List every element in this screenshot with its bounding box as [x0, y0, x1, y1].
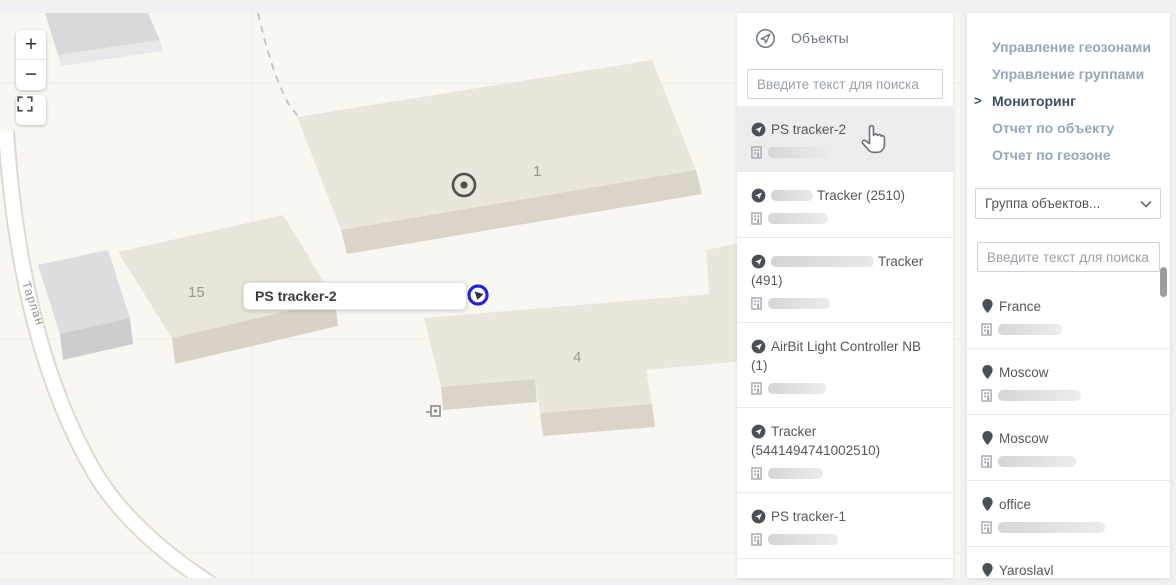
scrollbar-thumb[interactable]	[1160, 267, 1167, 297]
geofence-name: France	[999, 299, 1041, 314]
object-item-tracker-491[interactable]: Tracker (491)	[737, 238, 953, 323]
object-group-select-value: Группа объектов...	[985, 196, 1100, 211]
nav-link-groups[interactable]: Управление группами	[967, 65, 1170, 83]
object-name: Tracker (5441494741002510)	[751, 424, 880, 458]
redacted-text	[768, 534, 838, 545]
redacted-text	[998, 324, 1062, 335]
map-tooltip: PS tracker-2	[243, 282, 467, 310]
map-tooltip-label: PS tracker-2	[255, 288, 337, 304]
geofence-item-yaroslavl[interactable]: Yaroslavl	[967, 547, 1170, 578]
object-name: AirBit Light Controller NB (1)	[751, 339, 921, 373]
redacted-text	[768, 213, 828, 224]
building-icon	[751, 382, 762, 395]
send-icon	[751, 424, 766, 439]
object-identifier-redacted	[751, 467, 939, 480]
objects-search-input[interactable]	[747, 69, 943, 99]
geofence-list: France Moscow	[967, 283, 1170, 578]
zoom-control: + −	[16, 30, 46, 90]
object-identifier-redacted	[751, 382, 939, 395]
object-identifier-redacted	[751, 146, 939, 159]
object-item-ps-tracker-1[interactable]: PS tracker-1	[737, 493, 953, 559]
map-pin-icon	[981, 364, 994, 380]
dashed-boundary-line	[258, 13, 303, 123]
send-icon	[751, 254, 766, 269]
geofence-item-office[interactable]: office	[967, 481, 1170, 547]
fullscreen-button[interactable]	[16, 95, 46, 125]
entrance-icon	[426, 406, 440, 416]
send-icon	[751, 188, 766, 203]
geofence-address-redacted	[981, 389, 1156, 402]
building-icon	[981, 455, 992, 468]
map-pin-icon	[981, 298, 994, 314]
geofence-item-moscow-2[interactable]: Moscow	[967, 415, 1170, 481]
geofence-item-moscow-1[interactable]: Moscow	[967, 349, 1170, 415]
page: { "colors": { "marker_blue": "#2626d9", …	[0, 0, 1176, 585]
building-icon	[981, 521, 992, 534]
zoom-in-button[interactable]: +	[16, 30, 46, 60]
redacted-text	[768, 147, 830, 158]
building-gray-topleft	[45, 13, 163, 66]
building-4: 4	[424, 292, 756, 436]
object-name: Tracker (2510)	[817, 188, 905, 203]
redacted-text	[768, 383, 826, 394]
nav-link-geozone-report[interactable]: Отчет по геозоне	[967, 146, 1170, 164]
geofence-address-redacted	[981, 455, 1156, 468]
map-pin-icon	[981, 496, 994, 512]
nav-link-monitoring[interactable]: >Мониторинг	[967, 92, 1170, 110]
building-label-4: 4	[573, 349, 581, 366]
geofence-item-france[interactable]: France	[967, 283, 1170, 349]
chevron-down-icon	[1140, 200, 1152, 208]
object-item-tracker-2510[interactable]: Tracker (2510)	[737, 172, 953, 238]
redacted-text	[768, 298, 830, 309]
geofence-address-redacted	[981, 521, 1156, 534]
geofence-name: Moscow	[999, 365, 1049, 380]
nav-link-geozones[interactable]: Управление геозонами	[967, 38, 1170, 56]
map-pin-icon	[981, 562, 994, 578]
send-icon	[751, 509, 766, 524]
tracker-marker-selected[interactable]	[469, 286, 487, 304]
nav-link-object-report[interactable]: Отчет по объекту	[967, 119, 1170, 137]
geofence-name: office	[999, 497, 1031, 512]
redacted-text	[771, 190, 813, 201]
redacted-text	[771, 256, 874, 267]
redacted-text	[768, 468, 823, 479]
building-icon	[751, 297, 762, 310]
building-gray-left	[38, 250, 133, 360]
object-item-ps-tracker-2[interactable]: PS tracker-2	[737, 106, 953, 172]
building-1: 1	[297, 60, 702, 254]
object-identifier-redacted	[751, 212, 939, 225]
building-label-1: 1	[533, 163, 541, 180]
building-label-15: 15	[188, 284, 205, 301]
send-icon	[751, 122, 766, 137]
building-icon	[981, 389, 992, 402]
send-icon	[755, 28, 776, 49]
nav-link-label: Мониторинг	[992, 93, 1076, 109]
geofence-name: Yaroslavl	[999, 563, 1054, 578]
objects-panel-title: Объекты	[791, 30, 849, 46]
object-name: PS tracker-1	[771, 509, 846, 524]
objects-panel: Объекты PS tracker-2	[737, 13, 953, 578]
chevron-right-icon: >	[974, 92, 982, 110]
object-name: PS tracker-2	[771, 122, 846, 137]
geofence-search-input[interactable]	[977, 242, 1160, 272]
redacted-text	[998, 456, 1076, 467]
object-identifier-redacted	[751, 533, 939, 546]
building-icon	[751, 212, 762, 225]
map-pin-icon	[981, 430, 994, 446]
objects-panel-header: Объекты	[737, 13, 953, 63]
building-icon	[751, 533, 762, 546]
nav-menu: Управление геозонами Управление группами…	[967, 13, 1170, 164]
object-identifier-redacted	[751, 297, 939, 310]
building-icon	[751, 467, 762, 480]
geofence-name: Moscow	[999, 431, 1049, 446]
object-item-airbit[interactable]: AirBit Light Controller NB (1)	[737, 323, 953, 408]
fullscreen-icon	[16, 95, 34, 113]
building-icon	[751, 146, 762, 159]
geofence-address-redacted	[981, 323, 1156, 336]
zoom-out-button[interactable]: −	[16, 60, 46, 90]
object-item-tracker-5441[interactable]: Tracker (5441494741002510)	[737, 408, 953, 493]
building-icon	[981, 323, 992, 336]
objects-list: PS tracker-2 Tracker (2510)	[737, 106, 953, 559]
redacted-text	[998, 522, 1105, 533]
navigation-panel: Управление геозонами Управление группами…	[967, 13, 1170, 578]
redacted-text	[998, 390, 1081, 401]
send-icon	[751, 339, 766, 354]
object-group-select[interactable]: Группа объектов...	[975, 188, 1161, 219]
